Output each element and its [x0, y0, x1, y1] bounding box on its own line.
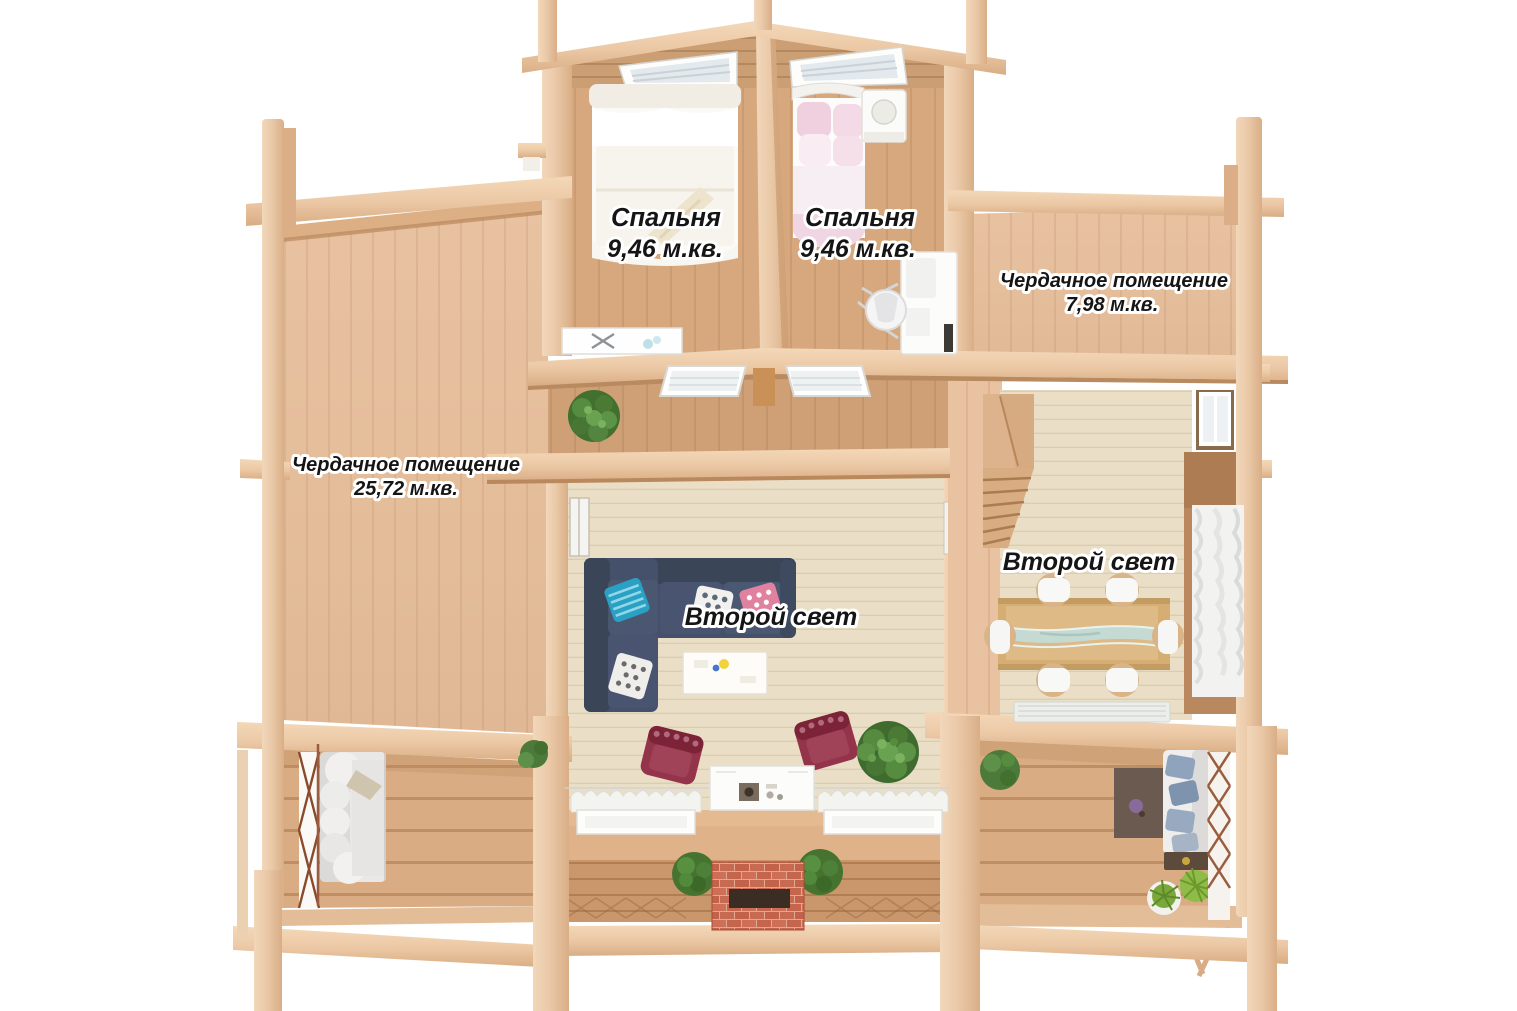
- svg-text:Чердачное помещение: Чердачное помещение: [292, 454, 520, 476]
- svg-text:25,72 м.кв.: 25,72 м.кв.: [353, 478, 458, 500]
- svg-text:Спальня: Спальня: [805, 204, 915, 232]
- svg-text:7,98 м.кв.: 7,98 м.кв.: [1066, 294, 1159, 316]
- svg-text:9,46 м.кв.: 9,46 м.кв.: [607, 235, 723, 263]
- svg-text:9,46 м.кв.: 9,46 м.кв.: [800, 235, 916, 263]
- svg-text:Второй свет: Второй свет: [685, 603, 858, 631]
- svg-text:Чердачное помещение: Чердачное помещение: [1000, 270, 1228, 292]
- svg-text:Второй свет: Второй свет: [1003, 548, 1176, 576]
- svg-text:Спальня: Спальня: [611, 204, 721, 232]
